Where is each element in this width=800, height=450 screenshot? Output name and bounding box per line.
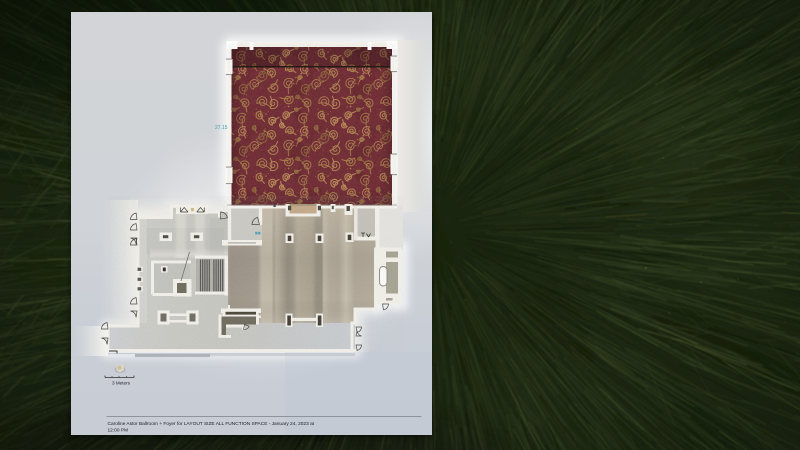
svg-text:12:00 PM: 12:00 PM bbox=[108, 428, 129, 434]
svg-text:Caroline Astor Ballroom + Foye: Caroline Astor Ballroom + Foyer for LAYO… bbox=[108, 421, 315, 427]
svg-text:3 Meters: 3 Meters bbox=[112, 381, 131, 386]
svg-text:27.15: 27.15 bbox=[215, 125, 228, 131]
